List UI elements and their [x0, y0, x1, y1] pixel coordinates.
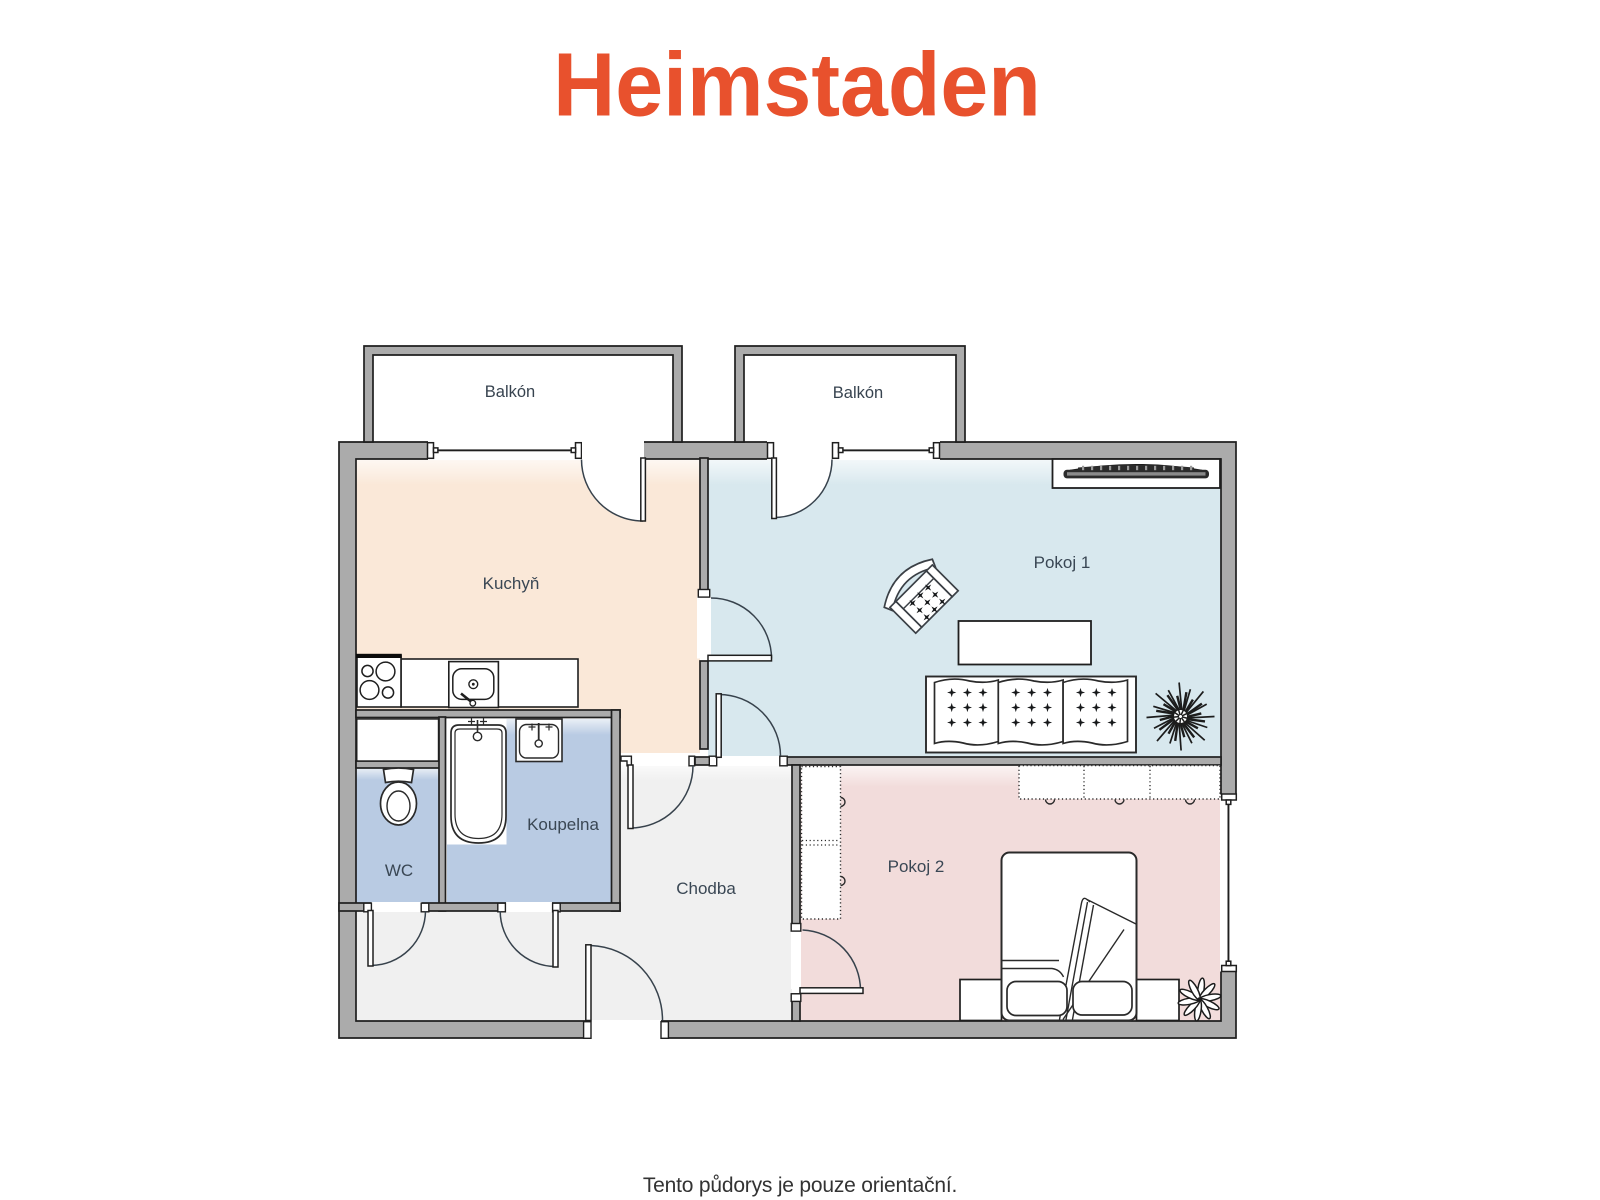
svg-text:Pokoj 2: Pokoj 2 — [888, 857, 945, 876]
svg-text:Tento půdorys je pouze orienta: Tento půdorys je pouze orientační. — [643, 1174, 957, 1197]
svg-text:Pokoj 1: Pokoj 1 — [1034, 553, 1091, 572]
svg-text:WC: WC — [385, 861, 413, 880]
svg-text:Koupelna: Koupelna — [527, 815, 599, 834]
svg-text:Chodba: Chodba — [676, 879, 736, 898]
svg-text:Balkón: Balkón — [833, 384, 883, 402]
svg-text:Balkón: Balkón — [485, 383, 535, 401]
svg-text:Kuchyň: Kuchyň — [483, 574, 540, 593]
svg-text:Heimstaden: Heimstaden — [553, 34, 1041, 135]
